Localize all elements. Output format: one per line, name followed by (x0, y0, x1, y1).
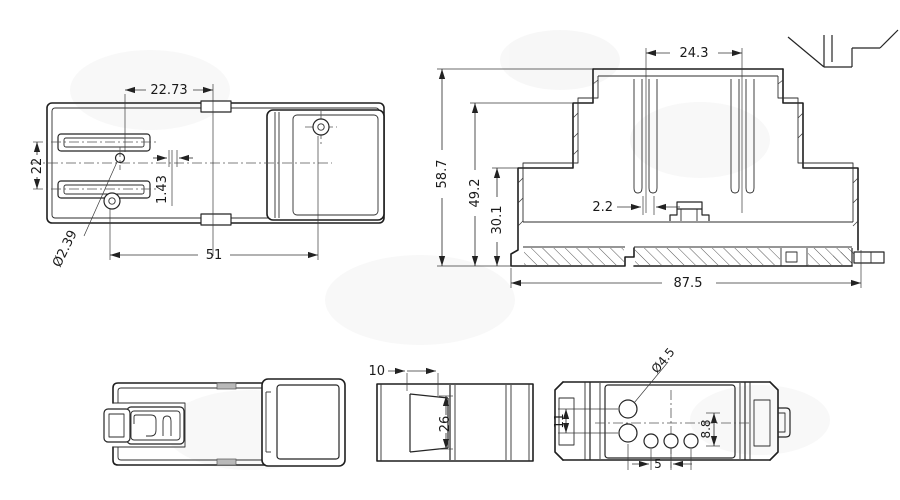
side-cover (262, 379, 345, 466)
section-left-profile (511, 69, 634, 266)
side-latch (104, 407, 184, 444)
section-right-profile (783, 69, 858, 250)
plan-top-tab (201, 101, 231, 112)
dim-section-base-height: 30.1 (490, 168, 518, 266)
dim-end-depth: 10 (368, 364, 438, 396)
dim-plan-height-label: 22 (30, 158, 45, 175)
dim-section-pin-span-label: 24.3 (680, 46, 709, 61)
plan-screw-hole-left (104, 193, 120, 209)
plan-bottom-tab (201, 214, 231, 225)
plan-slots (58, 134, 150, 198)
dim-plan-offset: 1.43 (153, 150, 193, 206)
section-foot-detail (786, 252, 797, 262)
dim-bottom-hole-dia-label: Ø4.5 (649, 345, 678, 376)
dim-section-width-label: 87.5 (674, 276, 703, 291)
corner-detail (788, 30, 898, 67)
drawing-canvas: 22.73 22 51 1.43 Ø2.39 (0, 0, 900, 500)
dim-bottom-pitch-label: 5 (654, 457, 662, 471)
dim-end-window-label: 26 (438, 416, 453, 433)
dim-section-base-height-label: 30.1 (490, 206, 505, 235)
side-top-tab (217, 383, 236, 389)
dim-section-total-height-label: 58.7 (435, 160, 450, 189)
dim-plan-offset-label: 1.43 (155, 175, 170, 204)
dim-bottom-row-offset-label: 8.8 (699, 419, 713, 438)
side-bottom-tab (217, 459, 236, 465)
dim-plan-hole-dia: Ø2.39 (50, 162, 117, 270)
section-din-clip (854, 252, 884, 263)
dim-section-slot-width: 2.2 (592, 196, 680, 215)
dim-bottom-slot-label: 11 (552, 413, 566, 428)
dim-section-slot-width-label: 2.2 (592, 200, 613, 215)
bottom-holes (619, 400, 698, 448)
dim-end-depth-label: 10 (368, 364, 385, 379)
dim-plan-height: 22 (30, 142, 45, 189)
section-pedestal (670, 202, 709, 221)
dim-plan-pitch-label: 22.73 (150, 83, 187, 98)
dim-plan-length-label: 51 (206, 248, 223, 263)
technical-drawing: 22.73 22 51 1.43 Ø2.39 (0, 0, 900, 500)
dim-section-upper-height: 49.2 (468, 103, 573, 266)
dim-section-upper-height-label: 49.2 (468, 179, 483, 208)
dim-section-pin-span: 24.3 (646, 46, 742, 61)
dim-end-window: 26 (438, 396, 453, 449)
end-view: 10 26 (368, 364, 533, 461)
section-hatch (524, 248, 854, 265)
dim-plan-hole-dia-label: Ø2.39 (50, 228, 81, 270)
